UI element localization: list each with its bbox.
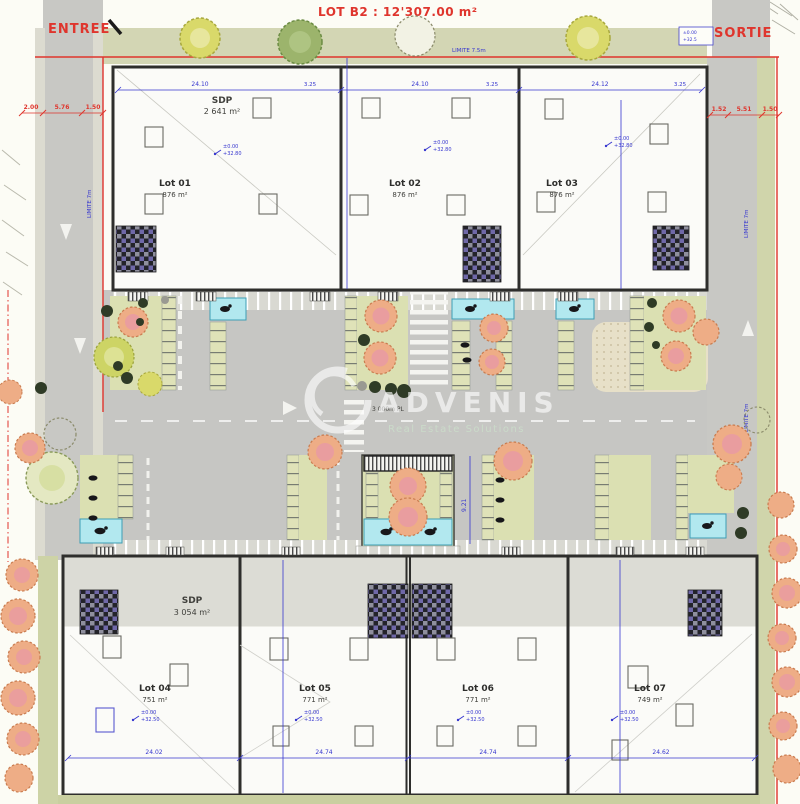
limit-label-top: LIMITE 7.5m <box>452 48 486 54</box>
left-verge-bottom <box>38 556 58 804</box>
parking-bays <box>452 321 470 390</box>
level-ground: ±0.00 <box>466 710 481 716</box>
site-plan-drawing: SDP 2 641 m² Lot 01 876 m² Lot 02 876 m²… <box>0 0 800 804</box>
dim-label: 24.74 <box>479 749 496 756</box>
sortie-label: SORTIE <box>714 26 772 41</box>
top-building-row: SDP 2 641 m² Lot 01 876 m² Lot 02 876 m²… <box>113 67 707 301</box>
tree-pink <box>494 442 532 480</box>
dim-label: 24.10 <box>411 81 428 88</box>
tree-pink <box>716 464 742 490</box>
parking-bays <box>558 321 574 390</box>
tree-yellow <box>180 18 220 58</box>
tree-pink <box>365 300 397 332</box>
sdp-top-label: SDP <box>212 96 233 106</box>
level-ground: ±0.00 <box>683 30 697 36</box>
dim-label: 24.12 <box>591 81 608 88</box>
lot-03-area: 876 m² <box>549 191 574 199</box>
exit-gate-note: ±0.00 +32.5 <box>679 27 713 45</box>
level-ground: ±0.00 <box>141 710 156 716</box>
sdp-bottom-label: SDP <box>182 596 203 606</box>
tree-yellow <box>138 372 162 396</box>
entree-label: ENTREE <box>48 22 110 37</box>
stair-core <box>368 584 408 638</box>
sdp-bottom-area: 3 054 m² <box>174 608 210 617</box>
level-roof: +32.50 <box>620 717 639 723</box>
lot-07-area: 749 m² <box>637 696 662 704</box>
parking-bays <box>210 322 226 390</box>
lot-04-area: 751 m² <box>142 696 167 704</box>
tree-pink <box>389 498 427 536</box>
watermark-name: ADVENIS <box>378 386 560 419</box>
dim-label: 3.25 <box>674 82 687 88</box>
bottom-green-strip <box>58 795 760 804</box>
tree-outline <box>395 16 435 56</box>
watermark-tagline: Real Estate Solutions <box>388 424 525 435</box>
dim-label: 9.21 <box>461 498 468 512</box>
site-plan: SDP 2 641 m² Lot 01 876 m² Lot 02 876 m²… <box>0 0 800 804</box>
level-roof: +32.80 <box>433 147 452 153</box>
dim-label: 1.50 <box>86 104 101 111</box>
lot-01-name: Lot 01 <box>159 179 191 189</box>
lot-02-name: Lot 02 <box>389 179 421 189</box>
dim-label: 24.02 <box>145 749 162 756</box>
stair-core <box>412 584 452 638</box>
stair-core <box>653 226 689 270</box>
tree-pink <box>663 300 695 332</box>
stair-core <box>463 226 501 282</box>
parking-bays <box>366 472 378 520</box>
dim-label: 24.10 <box>191 81 208 88</box>
parking-bays <box>676 455 688 540</box>
stair-core <box>688 590 722 636</box>
tree-green <box>278 20 322 64</box>
tree-yellow <box>566 16 610 60</box>
level-ground: ±0.00 <box>614 136 629 142</box>
lot-06-name: Lot 06 <box>462 684 494 694</box>
lot-06-area: 771 m² <box>465 696 490 704</box>
stair-core <box>116 226 156 272</box>
level-roof: +32.80 <box>223 151 242 157</box>
limit-label-right: LIMITE 7m <box>744 210 750 239</box>
level-ground: ±0.00 <box>620 710 635 716</box>
tree-pink <box>661 341 691 371</box>
tree-pink <box>15 433 45 463</box>
dim-label: 1.50 <box>763 106 778 113</box>
level-roof: +32.5 <box>683 37 697 43</box>
level-roof: +32.80 <box>614 143 633 149</box>
parking-bays <box>630 296 644 390</box>
dim-label: 5.76 <box>55 104 70 111</box>
plan-title: LOT B2 : 12'307.00 m² <box>318 5 478 19</box>
level-ground: ±0.00 <box>304 710 319 716</box>
dim-label: 3.25 <box>304 82 317 88</box>
limit-label-left: LIMITE 7m <box>87 190 93 219</box>
parking-bays <box>118 455 133 519</box>
tree-pink <box>479 349 505 375</box>
tree-pink <box>308 435 342 469</box>
tree-pink <box>364 342 396 374</box>
level-roof: +32.50 <box>466 717 485 723</box>
parking-bays <box>162 296 176 390</box>
tree-pink <box>693 319 719 345</box>
lot-05-area: 771 m² <box>302 696 327 704</box>
lot-01-area: 876 m² <box>162 191 187 199</box>
pmr-parking-bay <box>452 299 514 319</box>
lot-07-name: Lot 07 <box>634 684 666 694</box>
parking-bays <box>482 455 494 540</box>
lot-04-name: Lot 04 <box>139 684 171 694</box>
parking-bays <box>287 455 299 540</box>
tree-pink <box>480 314 508 342</box>
dim-label: 2.00 <box>24 104 39 111</box>
dim-label: 24.62 <box>652 749 669 756</box>
dim-label: 3.25 <box>486 82 499 88</box>
parking-bays <box>440 472 452 520</box>
dim-label: 24.74 <box>315 749 332 756</box>
right-verge <box>757 57 775 804</box>
lot-05-name: Lot 05 <box>299 684 331 694</box>
lot-03-name: Lot 03 <box>546 179 578 189</box>
parking-bays <box>595 455 609 540</box>
tree-yellow <box>94 337 134 377</box>
sdp-top-area: 2 641 m² <box>204 107 240 116</box>
level-roof: +32.50 <box>304 717 323 723</box>
dim-label: 5.51 <box>737 106 752 113</box>
level-ground: ±0.00 <box>433 140 448 146</box>
level-ground: ±0.00 <box>223 144 238 150</box>
stair-core <box>80 590 118 634</box>
tree-pink <box>713 425 751 463</box>
pedestrian-walkway <box>410 292 448 390</box>
level-roof: +32.50 <box>141 717 160 723</box>
dim-label: 1.52 <box>712 106 727 113</box>
lot-02-area: 876 m² <box>392 191 417 199</box>
